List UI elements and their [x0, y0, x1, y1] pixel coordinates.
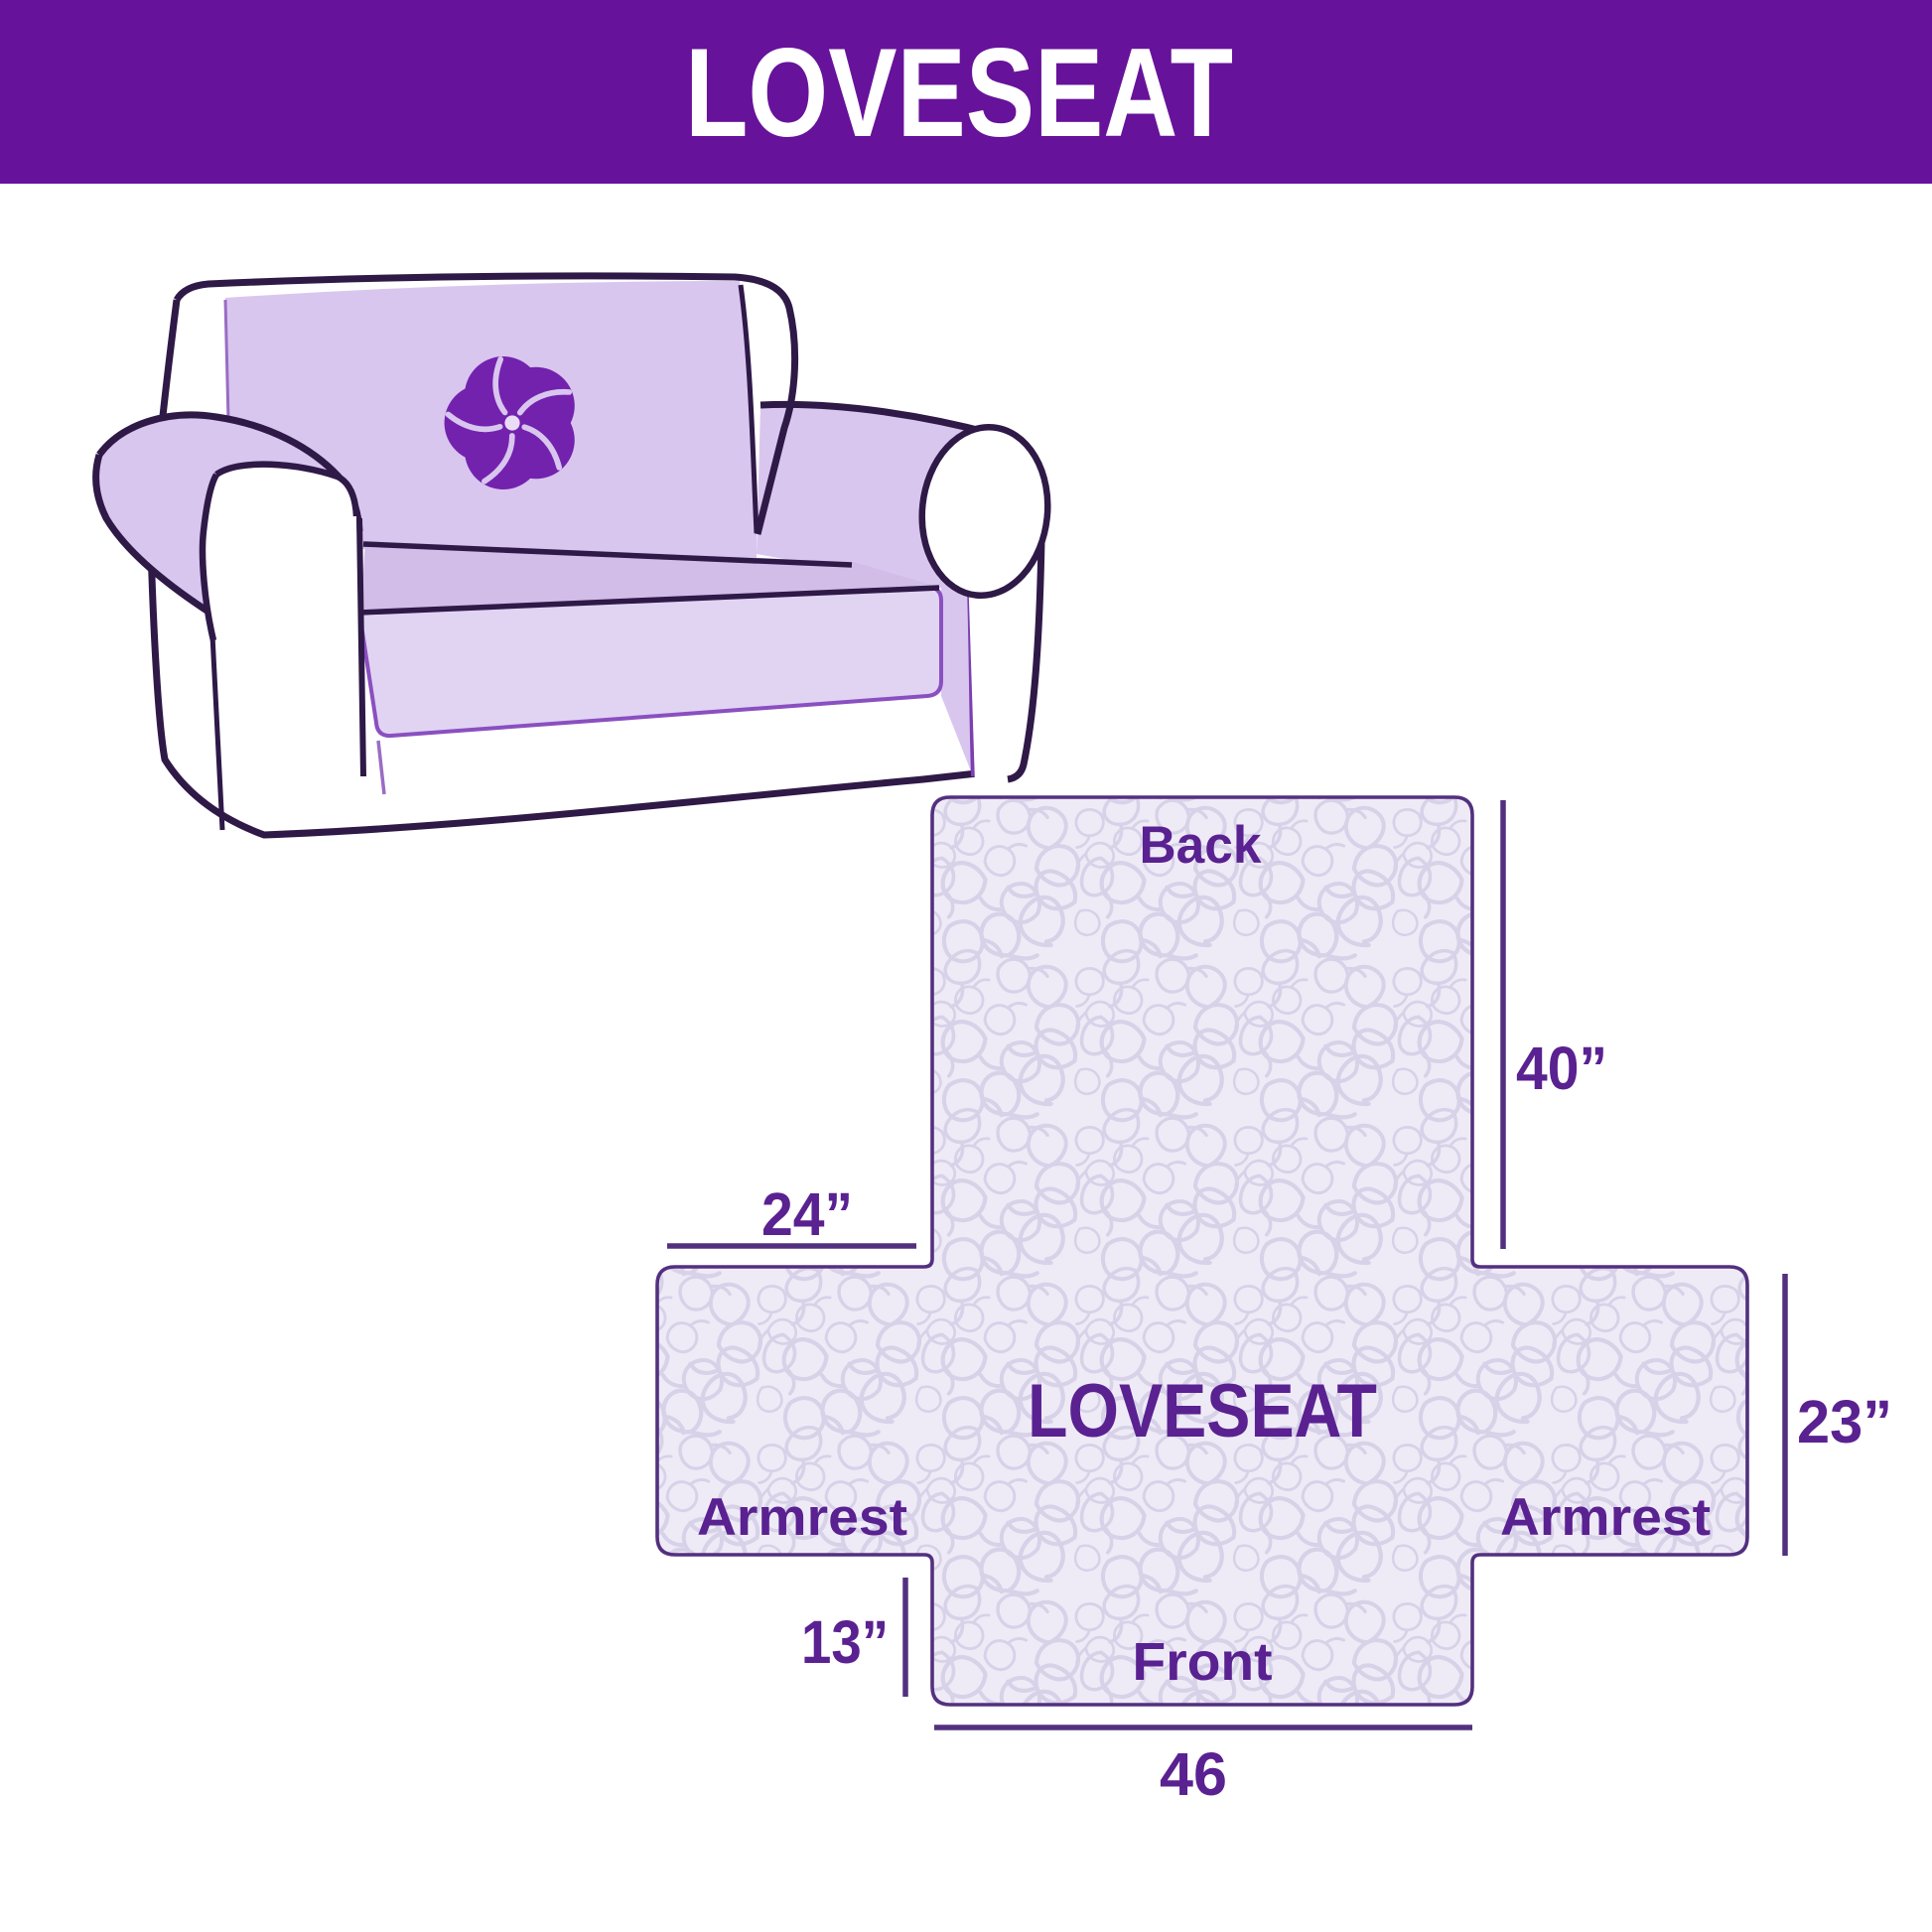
svg-text:LOVESEAT: LOVESEAT: [685, 22, 1233, 163]
svg-text:Armrest: Armrest: [697, 1488, 907, 1547]
svg-text:23”: 23”: [1797, 1388, 1892, 1455]
svg-text:13”: 13”: [801, 1608, 889, 1676]
svg-text:24”: 24”: [761, 1180, 853, 1248]
svg-text:Back: Back: [1140, 816, 1263, 875]
svg-text:Front: Front: [1133, 1632, 1273, 1692]
svg-text:Armrest: Armrest: [1500, 1488, 1711, 1547]
svg-text:46: 46: [1160, 1740, 1227, 1808]
svg-text:LOVESEAT: LOVESEAT: [1028, 1369, 1377, 1453]
svg-text:40”: 40”: [1516, 1035, 1607, 1102]
